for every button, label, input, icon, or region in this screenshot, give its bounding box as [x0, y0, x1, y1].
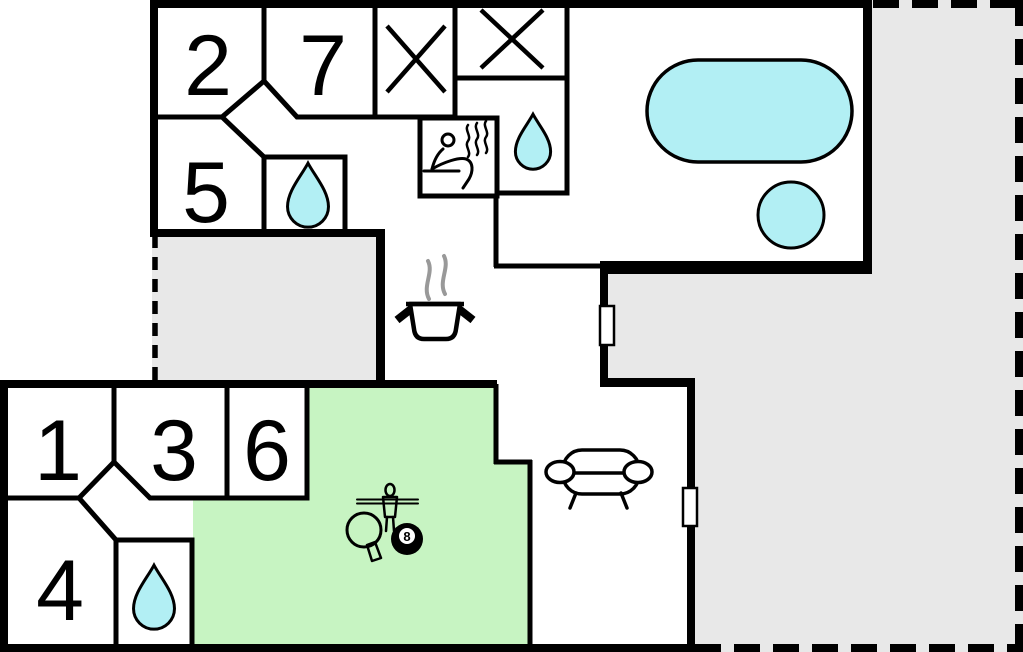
door-living-terrace: [683, 488, 697, 526]
pot-handle-right: [459, 309, 473, 320]
room-3-label: 3: [150, 403, 198, 499]
wall-pool-right: [863, 0, 872, 274]
pot-body: [410, 304, 460, 339]
pool-icon: [647, 60, 852, 162]
wall-left-upper: [150, 0, 158, 237]
pot-steam-icon-2: [443, 256, 446, 294]
sofa-armrest-right: [624, 462, 652, 483]
cooking-pot-icon: [397, 256, 473, 339]
room-6-label: 6: [243, 403, 291, 499]
eight-ball-number: 8: [403, 529, 410, 544]
wall-top: [150, 0, 872, 8]
wall-patio-right: [376, 229, 385, 387]
door-kitchen-terrace: [600, 306, 614, 345]
wall-lower-left: [0, 380, 8, 652]
wall-lower-bottom: [0, 644, 695, 652]
hot-tub-icon: [758, 182, 824, 248]
room-2-label: 2: [184, 18, 232, 114]
floor-plan: 8 2 7 5 1 3 6 4: [0, 0, 1023, 652]
pot-handle-left: [397, 309, 411, 320]
sofa-armrest-left: [546, 462, 574, 483]
floor-plan-canvas: 8 2 7 5 1 3 6 4: [0, 0, 1023, 652]
wall-lower-top: [0, 380, 497, 388]
pool-area: [647, 60, 852, 248]
sofa-leg-left: [570, 493, 576, 508]
room-7-label: 7: [299, 18, 347, 114]
patio-upper-left: [152, 230, 381, 386]
pot-steam-icon: [427, 261, 430, 299]
wall-living-top: [600, 378, 695, 387]
room-1-label: 1: [34, 403, 82, 499]
sofa-icon: [546, 450, 652, 508]
eight-ball-icon: 8: [391, 523, 423, 555]
room-4-label: 4: [36, 543, 84, 639]
wall-pool-bottom: [604, 261, 872, 274]
room-5-label: 5: [182, 145, 230, 241]
